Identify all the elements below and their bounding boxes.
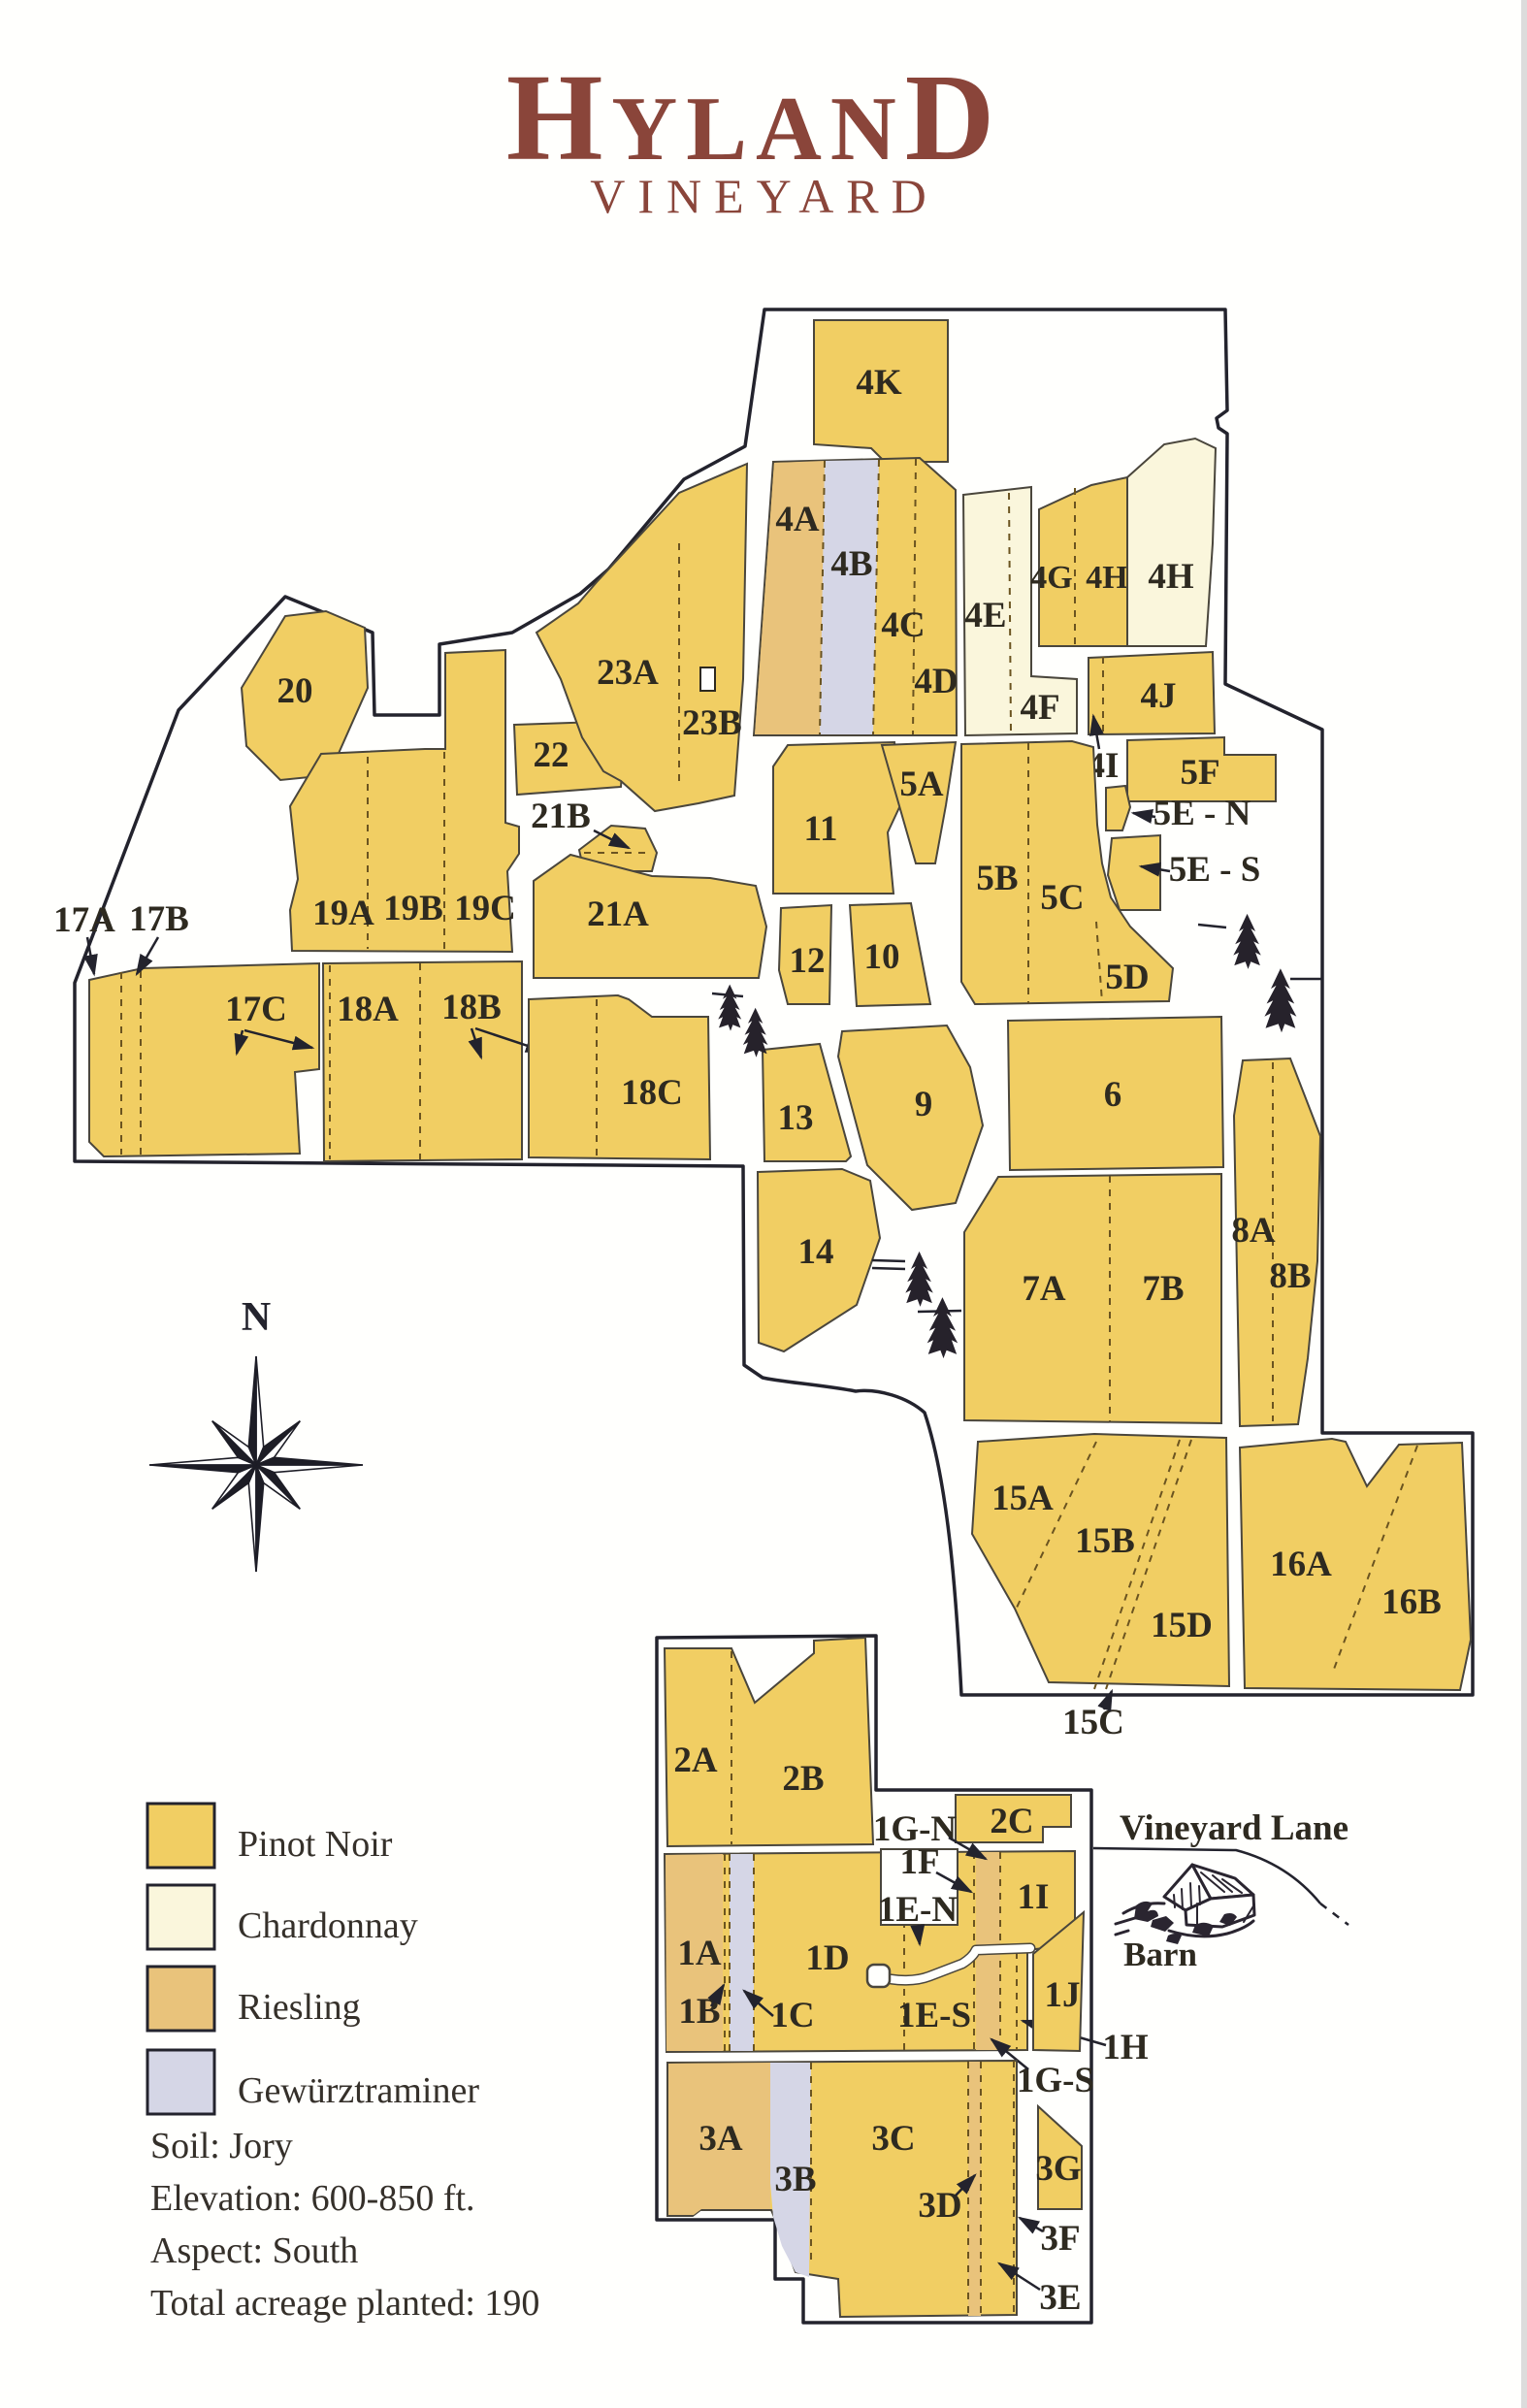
svg-text:Pinot Noir: Pinot Noir (238, 1824, 393, 1865)
svg-text:19A: 19A (312, 894, 374, 933)
svg-text:15A: 15A (991, 1479, 1054, 1518)
svg-text:3D: 3D (918, 2186, 961, 2226)
svg-text:4H: 4H (1148, 557, 1194, 597)
svg-text:17B: 17B (129, 899, 189, 939)
svg-text:3B: 3B (774, 2160, 816, 2199)
svg-text:2B: 2B (782, 1759, 824, 1799)
svg-text:4A: 4A (775, 500, 820, 539)
svg-text:HYLAND: HYLAND (506, 49, 1003, 186)
svg-text:23A: 23A (597, 653, 659, 693)
svg-text:6: 6 (1104, 1075, 1122, 1115)
svg-text:Riesling: Riesling (238, 1987, 361, 2028)
svg-text:23B: 23B (682, 703, 742, 743)
svg-text:14: 14 (798, 1232, 834, 1272)
svg-text:17C: 17C (225, 990, 287, 1029)
svg-text:4F: 4F (1020, 688, 1059, 728)
svg-text:4D: 4D (914, 662, 958, 701)
svg-text:5B: 5B (976, 859, 1018, 898)
svg-text:5E - N: 5E - N (1153, 794, 1251, 833)
svg-text:16A: 16A (1270, 1545, 1332, 1584)
svg-text:2C: 2C (990, 1802, 1033, 1841)
svg-text:18A: 18A (337, 990, 399, 1029)
svg-text:20: 20 (277, 671, 313, 711)
svg-text:18C: 18C (621, 1073, 683, 1113)
svg-text:4J: 4J (1141, 676, 1177, 716)
svg-text:N: N (242, 1295, 271, 1340)
svg-text:Aspect: South: Aspect: South (150, 2230, 358, 2271)
svg-text:Vineyard Lane: Vineyard Lane (1120, 1808, 1348, 1848)
svg-text:15C: 15C (1062, 1703, 1124, 1742)
svg-text:3A: 3A (699, 2119, 743, 2159)
svg-text:9: 9 (915, 1085, 933, 1124)
svg-text:4E: 4E (964, 596, 1006, 635)
svg-text:3G: 3G (1035, 2149, 1081, 2189)
svg-text:12: 12 (790, 941, 826, 981)
svg-text:1E-N: 1E-N (878, 1890, 958, 1930)
svg-text:3F: 3F (1040, 2219, 1080, 2259)
svg-text:8A: 8A (1231, 1211, 1276, 1251)
svg-text:Chardonnay: Chardonnay (238, 1905, 418, 1946)
svg-text:4C: 4C (881, 605, 925, 645)
svg-text:5D: 5D (1105, 958, 1149, 997)
svg-text:3E: 3E (1039, 2278, 1081, 2318)
svg-text:11: 11 (804, 809, 838, 849)
svg-text:1E-S: 1E-S (897, 1996, 971, 2035)
svg-text:7A: 7A (1022, 1269, 1066, 1309)
svg-text:21B: 21B (531, 797, 591, 836)
svg-text:15B: 15B (1075, 1521, 1135, 1561)
svg-text:1F: 1F (899, 1842, 939, 1882)
svg-text:1H: 1H (1102, 2028, 1149, 2067)
svg-text:22: 22 (534, 735, 569, 775)
svg-text:1J: 1J (1045, 1975, 1081, 2015)
svg-text:4K: 4K (856, 363, 902, 403)
svg-text:Elevation: 600-850 ft.: Elevation: 600-850 ft. (150, 2178, 475, 2219)
svg-text:1I: 1I (1018, 1877, 1050, 1917)
svg-text:1G-S: 1G-S (1017, 2061, 1094, 2100)
svg-text:17A: 17A (53, 900, 115, 940)
svg-text:19B: 19B (383, 889, 443, 928)
svg-text:Soil: Jory: Soil: Jory (150, 2126, 293, 2166)
svg-text:Barn: Barn (1123, 1936, 1197, 1973)
svg-text:7B: 7B (1142, 1269, 1184, 1309)
svg-text:1A: 1A (677, 1934, 722, 1973)
svg-text:19C: 19C (454, 889, 516, 928)
svg-text:16B: 16B (1381, 1582, 1442, 1622)
svg-text:5F: 5F (1180, 753, 1219, 793)
svg-text:3C: 3C (871, 2119, 915, 2159)
svg-text:4G: 4G (1030, 560, 1072, 596)
svg-text:4H: 4H (1086, 560, 1127, 596)
svg-text:18B: 18B (441, 988, 502, 1027)
svg-text:1D: 1D (805, 1938, 849, 1978)
svg-text:5A: 5A (899, 765, 944, 804)
svg-text:1B: 1B (678, 1992, 720, 2032)
svg-text:Gewürztraminer: Gewürztraminer (238, 2070, 479, 2111)
svg-text:10: 10 (864, 937, 900, 977)
svg-text:5C: 5C (1040, 878, 1084, 918)
svg-text:13: 13 (778, 1098, 814, 1138)
svg-text:15D: 15D (1151, 1606, 1213, 1645)
svg-text:5E - S: 5E - S (1169, 850, 1261, 890)
svg-text:4B: 4B (830, 544, 872, 584)
svg-text:8B: 8B (1269, 1256, 1311, 1296)
svg-text:21A: 21A (587, 895, 649, 934)
svg-text:1C: 1C (770, 1996, 814, 2035)
svg-text:VINEYARD: VINEYARD (590, 169, 939, 223)
svg-text:2A: 2A (673, 1741, 718, 1780)
svg-text:Total acreage planted: 190: Total acreage planted: 190 (150, 2283, 539, 2324)
